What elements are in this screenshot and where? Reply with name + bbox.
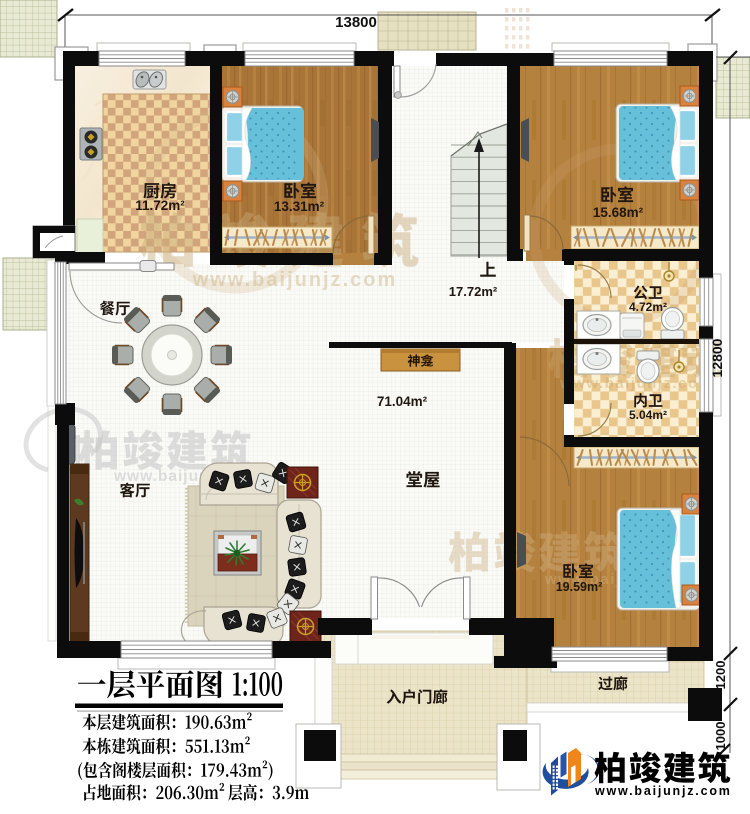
svg-text:5.04m²: 5.04m² (629, 408, 667, 422)
svg-text:71.04m²: 71.04m² (377, 394, 428, 409)
svg-text:13.31m²: 13.31m² (274, 199, 325, 214)
svg-text:13800: 13800 (335, 14, 377, 31)
svg-text:www.baijunjz.com: www.baijunjz.com (594, 784, 732, 798)
svg-text:1000: 1000 (713, 722, 728, 751)
svg-text:19.59m²: 19.59m² (556, 580, 603, 594)
svg-text:12800: 12800 (709, 338, 725, 377)
svg-text:11.72m²: 11.72m² (135, 198, 185, 213)
svg-text:4.72m²: 4.72m² (629, 300, 667, 314)
svg-text:15.68m²: 15.68m² (593, 205, 644, 220)
svg-text:1200: 1200 (713, 661, 728, 690)
svg-text:17.72m²: 17.72m² (449, 284, 498, 299)
svg-text:www.baijunjz.com: www.baijunjz.com (559, 375, 713, 392)
